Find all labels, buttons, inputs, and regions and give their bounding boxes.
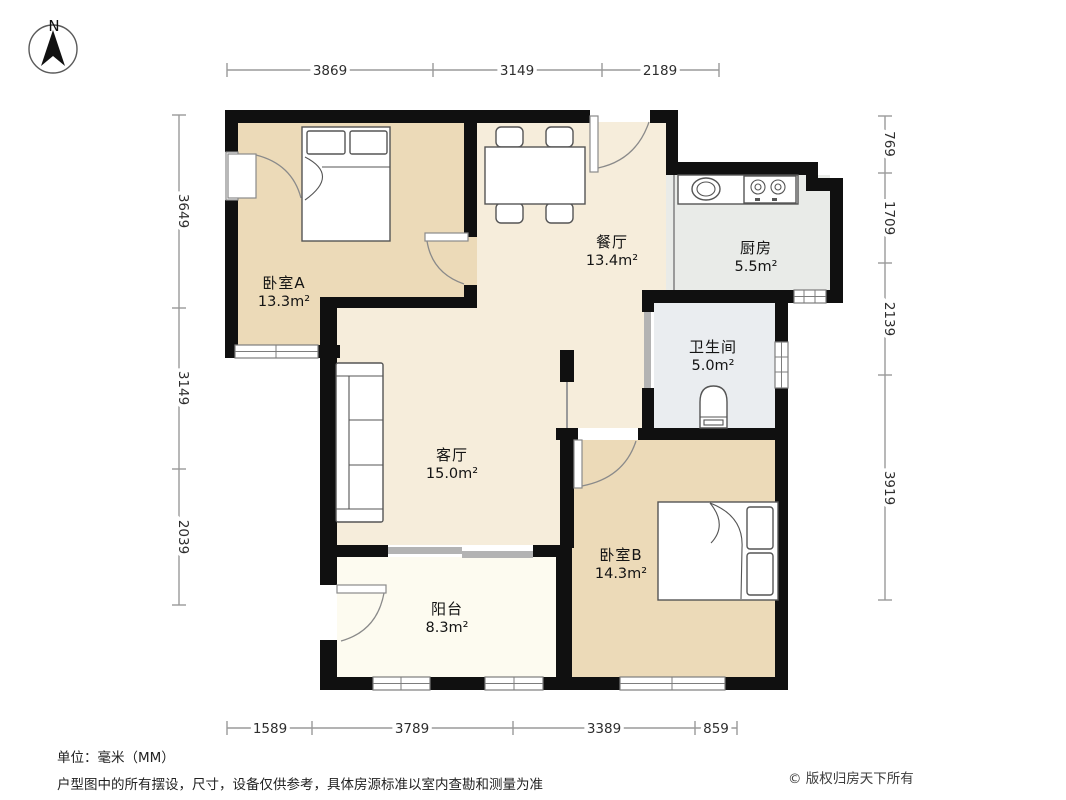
window-kitchen [794, 290, 826, 303]
room-label-bathroom: 卫生间 [689, 338, 737, 356]
dim-right-2: 1709 [881, 201, 897, 235]
room-area-balcony: 8.3m² [426, 620, 469, 636]
dimension-bottom: 1589 3789 3389 859 [227, 721, 737, 737]
dimension-right: 769 1709 2139 3919 [878, 116, 897, 600]
unit-note: 单位：毫米（MM） [57, 749, 175, 766]
dim-left-3: 2039 [175, 520, 191, 554]
dim-bottom-4: 859 [703, 721, 729, 737]
room-area-dining: 13.4m² [586, 253, 638, 269]
compass-label: N [48, 17, 59, 35]
window-bathroom [775, 342, 788, 388]
dimension-top: 3869 3149 2189 [227, 63, 719, 79]
balcony-slider-panel [462, 551, 533, 558]
room-area-living: 15.0m² [426, 466, 478, 482]
room-label-kitchen: 厨房 [740, 239, 772, 257]
sofa-icon [336, 363, 383, 522]
balcony-slider-panel [388, 547, 462, 554]
dim-bottom-2: 3789 [395, 721, 429, 737]
window-balcony-right [485, 677, 543, 690]
dim-bottom-1: 1589 [253, 721, 287, 737]
bathroom-slider-panel [644, 312, 651, 388]
footer: 单位：毫米（MM） 户型图中的所有摆设，尺寸，设备仅供参考，具体房源标准以室内查… [57, 749, 914, 793]
dimension-left: 3649 3149 2039 [172, 115, 191, 605]
room-area-bedroom-a: 13.3m² [258, 294, 310, 310]
room-area-kitchen: 5.5m² [735, 259, 778, 275]
window-bedroom-b [620, 677, 725, 690]
dim-right-3: 2139 [881, 302, 897, 336]
bed-icon [658, 502, 778, 600]
window-bedroom-a [235, 345, 318, 358]
dim-top-1: 3869 [313, 63, 347, 79]
dim-right-1: 769 [881, 131, 897, 157]
dim-right-4: 3919 [881, 471, 897, 505]
dim-bottom-3: 3389 [587, 721, 621, 737]
north-arrow-icon: N [29, 17, 77, 73]
room-area-bedroom-b: 14.3m² [595, 566, 647, 582]
dim-left-2: 3149 [175, 371, 191, 405]
toilet-icon [700, 386, 727, 428]
bed-icon [302, 127, 390, 241]
dim-top-2: 3149 [500, 63, 534, 79]
room-label-bedroom-b: 卧室B [599, 546, 642, 564]
copyright: © 版权归房天下所有 [788, 770, 914, 787]
room-label-bedroom-a: 卧室A [262, 274, 305, 292]
room-area-bathroom: 5.0m² [692, 358, 735, 374]
room-label-living: 客厅 [436, 446, 468, 464]
disclaimer: 户型图中的所有摆设，尺寸，设备仅供参考，具体房源标准以室内查勘和测量为准 [57, 776, 543, 793]
dim-left-1: 3649 [175, 194, 191, 228]
room-label-dining: 餐厅 [596, 233, 628, 251]
dim-top-3: 2189 [643, 63, 677, 79]
window-balcony-left [373, 677, 430, 690]
floor-plan: fang.com fang.com fang.com [0, 0, 1066, 800]
stove-icon [744, 176, 796, 203]
room-label-balcony: 阳台 [431, 600, 463, 618]
